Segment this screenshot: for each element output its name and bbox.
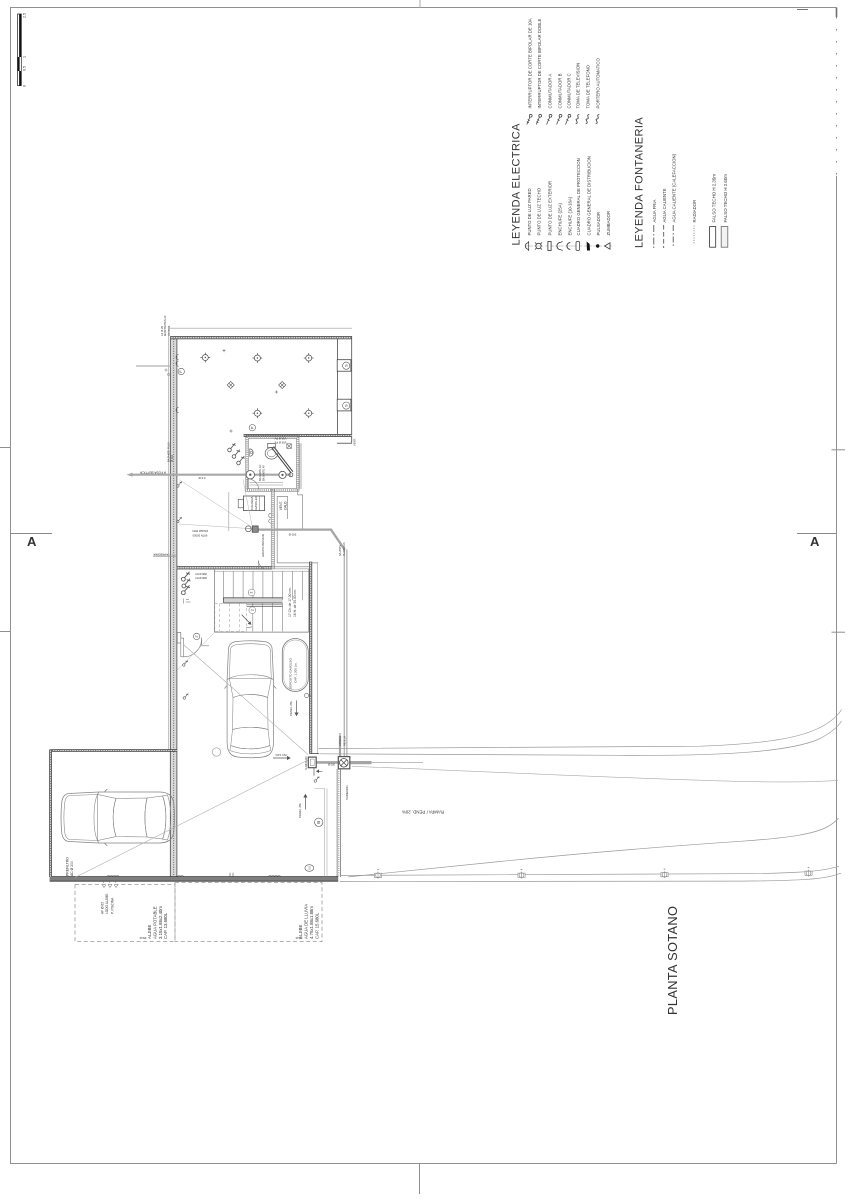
svg-text:BAJANTE AC: BAJANTE AC <box>258 465 262 481</box>
svg-text:FALSO TECHO H 2.35m: FALSO TECHO H 2.35m <box>711 174 716 223</box>
svg-text:S: S <box>344 404 349 407</box>
svg-text:1: 1 <box>23 56 27 58</box>
svg-text:Ø 110: Ø 110 <box>170 454 174 462</box>
svg-text:S: S <box>344 364 349 367</box>
svg-text:3.15x1.88x2.40m: 3.15x1.88x2.40m <box>158 906 163 939</box>
svg-text:CONMUTADOR C: CONMUTADOR C <box>566 73 571 108</box>
svg-text:CAP. 13.680L: CAP. 13.680L <box>163 912 168 939</box>
svg-text:98TN 50050: 98TN 50050 <box>192 533 207 537</box>
svg-text:INTERRUPTOR DE CORTE BIPOLAR D: INTERRUPTOR DE CORTE BIPOLAR DOBLE <box>537 19 542 109</box>
svg-text:A: A <box>810 534 820 549</box>
svg-text:CUADRO GENERAL DE PROTECCION: CUADRO GENERAL DE PROTECCION <box>576 158 581 235</box>
svg-text:PLUVIALES: PLUVIALES <box>343 542 346 556</box>
svg-text:DEPOSITO GASOLEO: DEPOSITO GASOLEO <box>289 657 293 689</box>
svg-text:0: 0 <box>23 85 27 87</box>
svg-text:PEND. 2%: PEND. 2% <box>298 803 302 818</box>
svg-text:AGUA CALIENTE (CALEFACCION): AGUA CALIENTE (CALEFACCION) <box>671 153 676 222</box>
svg-text:V08 Ø PV: V08 Ø PV <box>274 441 286 445</box>
svg-text:LEYENDA ELECTRICA: LEYENDA ELECTRICA <box>511 123 523 246</box>
svg-text:SUBIENDO: SUBIENDO <box>345 785 349 800</box>
svg-text:PUNTO DE LUZ TECHO: PUNTO DE LUZ TECHO <box>537 187 542 235</box>
svg-text:INTERRUPTOR DE CORTE BIPOLAR D: INTERRUPTOR DE CORTE BIPOLAR DE 10A <box>528 18 533 108</box>
svg-text:PORTERO AUTOMATICO: PORTERO AUTOMATICO <box>596 57 601 108</box>
svg-text:PEND. 2%: PEND. 2% <box>289 701 293 716</box>
svg-text:TOMA DE TELEFONO: TOMA DE TELEFONO <box>586 64 591 108</box>
svg-text:AF Ø 63: AF Ø 63 <box>100 902 104 914</box>
svg-text:P: P <box>250 426 254 429</box>
svg-text:Ø110: Ø110 <box>139 936 146 940</box>
svg-text:CAP. 15.680L: CAP. 15.680L <box>314 912 319 939</box>
svg-text:A: A <box>27 534 37 549</box>
svg-text:Ø110: Ø110 <box>295 936 302 940</box>
svg-text:CALD.: CALD. <box>284 501 288 511</box>
svg-text:B: B <box>316 821 321 824</box>
svg-text:AC Ø 200: AC Ø 200 <box>70 861 74 876</box>
svg-text:GASOLEO: GASOLEO <box>254 495 258 510</box>
svg-text:CANALETA: CANALETA <box>339 733 342 746</box>
svg-text:REJILLA: REJILLA <box>343 736 346 746</box>
svg-text:BAJANTE PLUV.: BAJANTE PLUV. <box>166 441 170 462</box>
svg-text:PACER PPIV: PACER PPIV <box>192 529 208 533</box>
svg-text:35B Ø PV: 35B Ø PV <box>195 572 207 576</box>
svg-text:PUNTO DE LUZ EXTERIOR: PUNTO DE LUZ EXTERIOR <box>548 181 553 236</box>
svg-text:PUNTO DE LUZ PARED: PUNTO DE LUZ PARED <box>527 188 532 235</box>
svg-text:VENT.: VENT. <box>279 501 283 510</box>
svg-text:V08 Ø PV: V08 Ø PV <box>274 436 286 440</box>
svg-text:PULSADOR: PULSADOR <box>596 212 601 236</box>
svg-text:TOMA DE TELEVISION: TOMA DE TELEVISION <box>576 63 581 109</box>
svg-text:2.5: 2.5 <box>23 13 27 18</box>
svg-text:A FOSA SEPTICA: A FOSA SEPTICA <box>139 470 166 474</box>
svg-text:AC Ø 25: AC Ø 25 <box>167 325 171 336</box>
svg-text:GRUPO PRESION: GRUPO PRESION <box>261 534 265 557</box>
svg-text:FALSO TECHO H 2.60m: FALSO TECHO H 2.60m <box>723 174 728 223</box>
svg-text:300 Ø: 300 Ø <box>328 762 335 766</box>
svg-text:CUADRO GENERAL DE DISTRIBUCION: CUADRO GENERAL DE DISTRIBUCION <box>586 156 591 235</box>
svg-text:LODO ALJIBE: LODO ALJIBE <box>105 894 109 914</box>
svg-text:300 Ø: 300 Ø <box>288 533 296 537</box>
svg-text:BAJANTE: BAJANTE <box>339 544 342 556</box>
svg-text:VENT.: VENT. <box>352 438 356 446</box>
svg-text:AGUA POTABLE: AGUA POTABLE <box>152 906 157 939</box>
svg-text:PREFILTRO: PREFILTRO <box>66 857 70 876</box>
svg-text:0.5 Ø: 0.5 Ø <box>198 476 206 480</box>
svg-text:RAMPA / PEND. 20%: RAMPA / PEND. 20% <box>402 810 444 815</box>
svg-text:AGUA CALIENTE: AGUA CALIENTE <box>662 188 667 222</box>
svg-text:SUMIDERO: SUMIDERO <box>305 756 308 770</box>
svg-text:17 Ch. de 17.00 cm.: 17 Ch. de 17.00 cm. <box>288 587 292 617</box>
svg-text:BAJANTE AF: BAJANTE AF <box>261 465 265 481</box>
svg-text:ZUMBADOR: ZUMBADOR <box>606 211 611 236</box>
svg-text:INC 12%: INC 12% <box>275 753 287 757</box>
svg-text:CAP. 1.200 Lts.: CAP. 1.200 Lts. <box>293 662 297 683</box>
svg-text:CONMUTADOR B: CONMUTADOR B <box>557 73 562 108</box>
svg-text:0.5: 0.5 <box>23 66 27 71</box>
svg-text:ALJIBE: ALJIBE <box>147 925 152 939</box>
svg-text:4.75x1.88x1.88m: 4.75x1.88x1.88m <box>309 906 314 939</box>
svg-text:CONMUTADOR A: CONMUTADOR A <box>547 74 552 109</box>
svg-text:PLANTA SOTANO: PLANTA SOTANO <box>665 906 680 1015</box>
svg-text:RADIADOR: RADIADOR <box>692 200 697 223</box>
svg-text:A PISCINA: A PISCINA <box>154 552 169 556</box>
svg-text:AGUA DE LLUVIA: AGUA DE LLUVIA <box>304 904 309 939</box>
svg-text:2: 2 <box>195 635 199 637</box>
svg-text:MONTANTES AF: MONTANTES AF <box>163 315 167 336</box>
svg-text:ENCHUFE (25A): ENCHUFE (25A) <box>558 202 563 235</box>
svg-text:30B Ø PV: 30B Ø PV <box>195 576 207 580</box>
svg-text:AGUA FRIA: AGUA FRIA <box>652 199 657 222</box>
svg-text:V3: V3 <box>307 866 311 870</box>
svg-text:LEYENDA FONTANERIA: LEYENDA FONTANERIA <box>634 117 646 248</box>
svg-text:2: 2 <box>250 609 254 611</box>
svg-text:P. PISCINA: P. PISCINA <box>110 897 114 914</box>
svg-text:16 H. de 30.00 cm.: 16 H. de 30.00 cm. <box>293 589 297 617</box>
svg-text:ENCHUFE (10-16A): ENCHUFE (10-16A) <box>567 196 572 235</box>
svg-text:2: 2 <box>250 591 254 593</box>
